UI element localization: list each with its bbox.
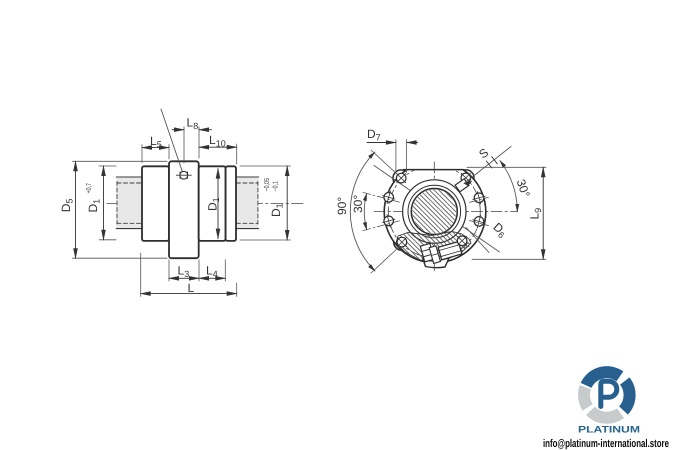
svg-text:90°: 90° — [335, 197, 349, 215]
svg-text:30°: 30° — [351, 195, 365, 213]
svg-text:L10: L10 — [209, 133, 226, 149]
svg-text:D1: D1 — [269, 203, 285, 217]
svg-text:D7: D7 — [367, 127, 381, 143]
svg-text:S: S — [476, 145, 491, 161]
svg-text:L4: L4 — [206, 264, 218, 280]
svg-text:L9: L9 — [528, 208, 544, 220]
svg-text:+0,7: +0,7 — [86, 183, 93, 194]
svg-text:L3: L3 — [178, 264, 190, 280]
svg-text:−0,1: −0,1 — [273, 181, 280, 192]
svg-text:D1: D1 — [86, 199, 102, 213]
svg-text:info@platinum-international.st: info@platinum-international.store — [543, 438, 669, 450]
svg-text:D6: D6 — [489, 220, 510, 241]
svg-text:L5: L5 — [150, 134, 162, 150]
svg-text:30°: 30° — [514, 177, 533, 199]
svg-text:L8: L8 — [187, 116, 199, 132]
svg-text:L: L — [188, 281, 195, 295]
svg-text:PLATINUM: PLATINUM — [578, 425, 640, 436]
svg-text:D5: D5 — [59, 199, 75, 213]
svg-text:−0,05: −0,05 — [264, 178, 271, 192]
